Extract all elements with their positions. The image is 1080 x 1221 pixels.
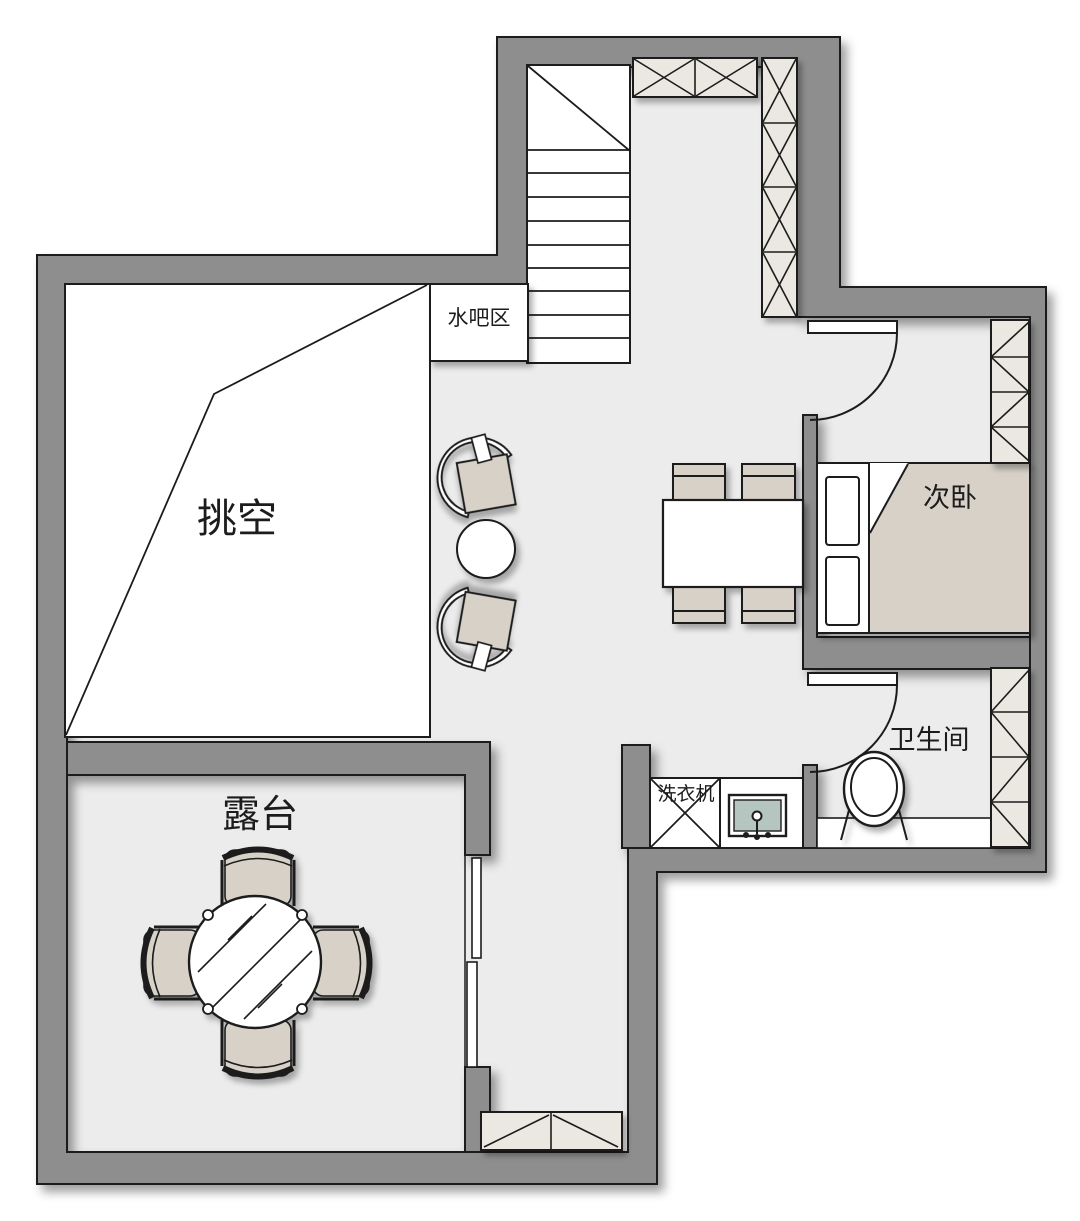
hall-side-closet bbox=[762, 58, 797, 317]
dining-table bbox=[663, 500, 803, 587]
bedroom-wardrobe bbox=[991, 320, 1029, 463]
label-washing-machine: 洗衣机 bbox=[657, 783, 714, 805]
label-bathroom: 卫生间 bbox=[889, 725, 970, 756]
hall-top-closet bbox=[633, 58, 757, 97]
wash-basin bbox=[729, 795, 786, 840]
laundry-partition-wall bbox=[622, 745, 650, 848]
stairs bbox=[527, 65, 630, 363]
floor-plan-drawing: 挑空 水吧区 次卧 卫生间 洗衣机 露台 bbox=[0, 0, 1080, 1221]
bathroom-cabinet bbox=[991, 668, 1029, 847]
label-water-bar: 水吧区 bbox=[448, 306, 511, 330]
label-terrace: 露台 bbox=[222, 792, 298, 836]
lounge-side-table bbox=[457, 520, 515, 578]
corridor-cabinet bbox=[481, 1112, 622, 1150]
label-void: 挑空 bbox=[197, 496, 277, 542]
floor-plan-canvas: 挑空 水吧区 次卧 卫生间 洗衣机 露台 bbox=[0, 0, 1080, 1221]
label-secondary-bedroom: 次卧 bbox=[923, 483, 977, 514]
terrace-glass-table bbox=[189, 896, 321, 1028]
bathroom-door-jamb-wall bbox=[803, 765, 817, 848]
